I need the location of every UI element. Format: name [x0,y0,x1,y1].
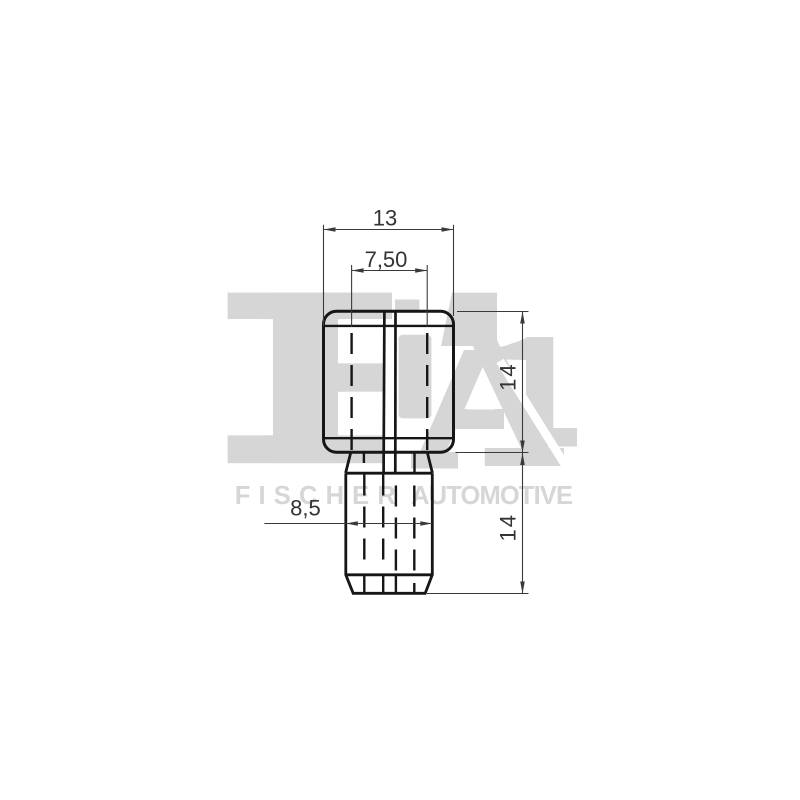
svg-text:8,5: 8,5 [290,496,321,521]
svg-text:7,50: 7,50 [365,247,408,272]
svg-text:13: 13 [373,206,397,231]
svg-text:14: 14 [495,513,520,541]
svg-text:14: 14 [495,362,520,390]
svg-text:AUTOMOTIVE: AUTOMOTIVE [411,482,573,510]
